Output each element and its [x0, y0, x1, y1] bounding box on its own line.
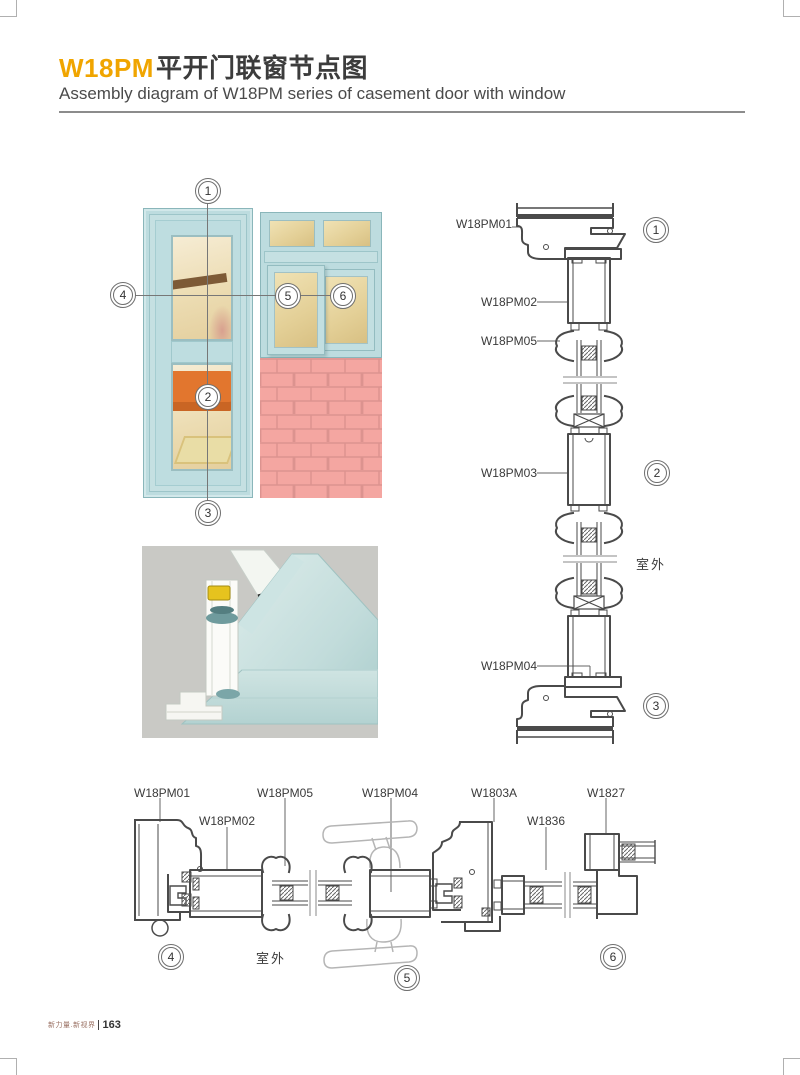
page-title: W18PM平开门联窗节点图	[59, 48, 368, 85]
callout-number: 5	[397, 968, 417, 988]
sash-glass	[274, 272, 318, 348]
interior-plant	[209, 305, 231, 339]
callout-4: 4	[110, 282, 136, 308]
part-label: W18PM05	[257, 786, 313, 800]
sliding-sash-right	[318, 269, 375, 351]
footer-divider	[98, 1020, 99, 1030]
page-number: 163	[102, 1019, 120, 1031]
brick-wall	[260, 358, 382, 498]
callout-number: 4	[161, 947, 181, 967]
callout-number: 2	[198, 387, 218, 407]
callout-number: 3	[198, 503, 218, 523]
outdoor-label: 室外	[256, 948, 286, 967]
section-callout-4: 4	[158, 944, 184, 970]
part-label: W18PM01	[134, 786, 190, 800]
horizontal-section-drawing	[120, 780, 670, 990]
catalog-page: W18PM平开门联窗节点图 Assembly diagram of W18PM …	[0, 0, 800, 1075]
section-callout-6: 6	[600, 944, 626, 970]
callout-number: 2	[647, 463, 667, 483]
section-callout-2: 2	[644, 460, 670, 486]
crop-mark	[783, 1058, 800, 1075]
part-label: W1803A	[471, 786, 517, 800]
part-label: W18PM04	[362, 786, 418, 800]
section-callout-1: 1	[643, 217, 669, 243]
callout-number: 5	[278, 286, 298, 306]
sliding-sash-left	[267, 265, 325, 355]
title-chinese: 平开门联窗节点图	[156, 53, 368, 83]
callout-2: 2	[195, 384, 221, 410]
part-label: W18PM02	[457, 295, 537, 309]
callout-number: 6	[603, 947, 623, 967]
transom-pane-right	[323, 220, 371, 247]
window-illustration	[260, 212, 382, 358]
door-illustration	[143, 208, 253, 498]
section-callout-3: 3	[643, 693, 669, 719]
part-label: W1827	[587, 786, 625, 800]
callout-6: 6	[330, 283, 356, 309]
interior-shelf	[171, 273, 227, 290]
section-callout-5: 5	[394, 965, 420, 991]
part-label: W1836	[527, 814, 565, 828]
transom-rail	[264, 251, 378, 263]
profile-3d-render	[142, 546, 378, 738]
interior-rug	[174, 436, 233, 464]
header-rule	[59, 111, 745, 113]
callout-number: 1	[646, 220, 666, 240]
callout-line-vertical	[207, 200, 208, 515]
crop-mark	[0, 0, 17, 17]
series-code: W18PM	[59, 53, 154, 83]
transom-pane-left	[269, 220, 315, 247]
part-label: W18PM05	[457, 334, 537, 348]
door-window-illustration	[143, 208, 382, 498]
callout-number: 1	[198, 181, 218, 201]
part-label: W18PM04	[457, 659, 537, 673]
outdoor-label: 室外	[636, 554, 666, 573]
page-footer: 新力量.新视界 163	[48, 1019, 121, 1031]
part-label: W18PM03	[457, 466, 537, 480]
callout-1: 1	[195, 178, 221, 204]
crop-mark	[0, 1058, 17, 1075]
crop-mark	[783, 0, 800, 17]
callout-number: 6	[333, 286, 353, 306]
callout-number: 4	[113, 285, 133, 305]
callout-number: 3	[646, 696, 666, 716]
part-label: W18PM02	[199, 814, 255, 828]
door-glass-bottom	[171, 363, 233, 471]
part-label: W18PM01	[432, 217, 512, 231]
callout-line-horizontal	[135, 295, 344, 296]
callout-5: 5	[275, 283, 301, 309]
door-glass-top	[171, 235, 233, 341]
page-subtitle: Assembly diagram of W18PM series of case…	[59, 84, 565, 104]
callout-3: 3	[195, 500, 221, 526]
door-mid-rail	[171, 341, 233, 363]
footer-slogan: 新力量.新视界	[48, 1020, 95, 1030]
